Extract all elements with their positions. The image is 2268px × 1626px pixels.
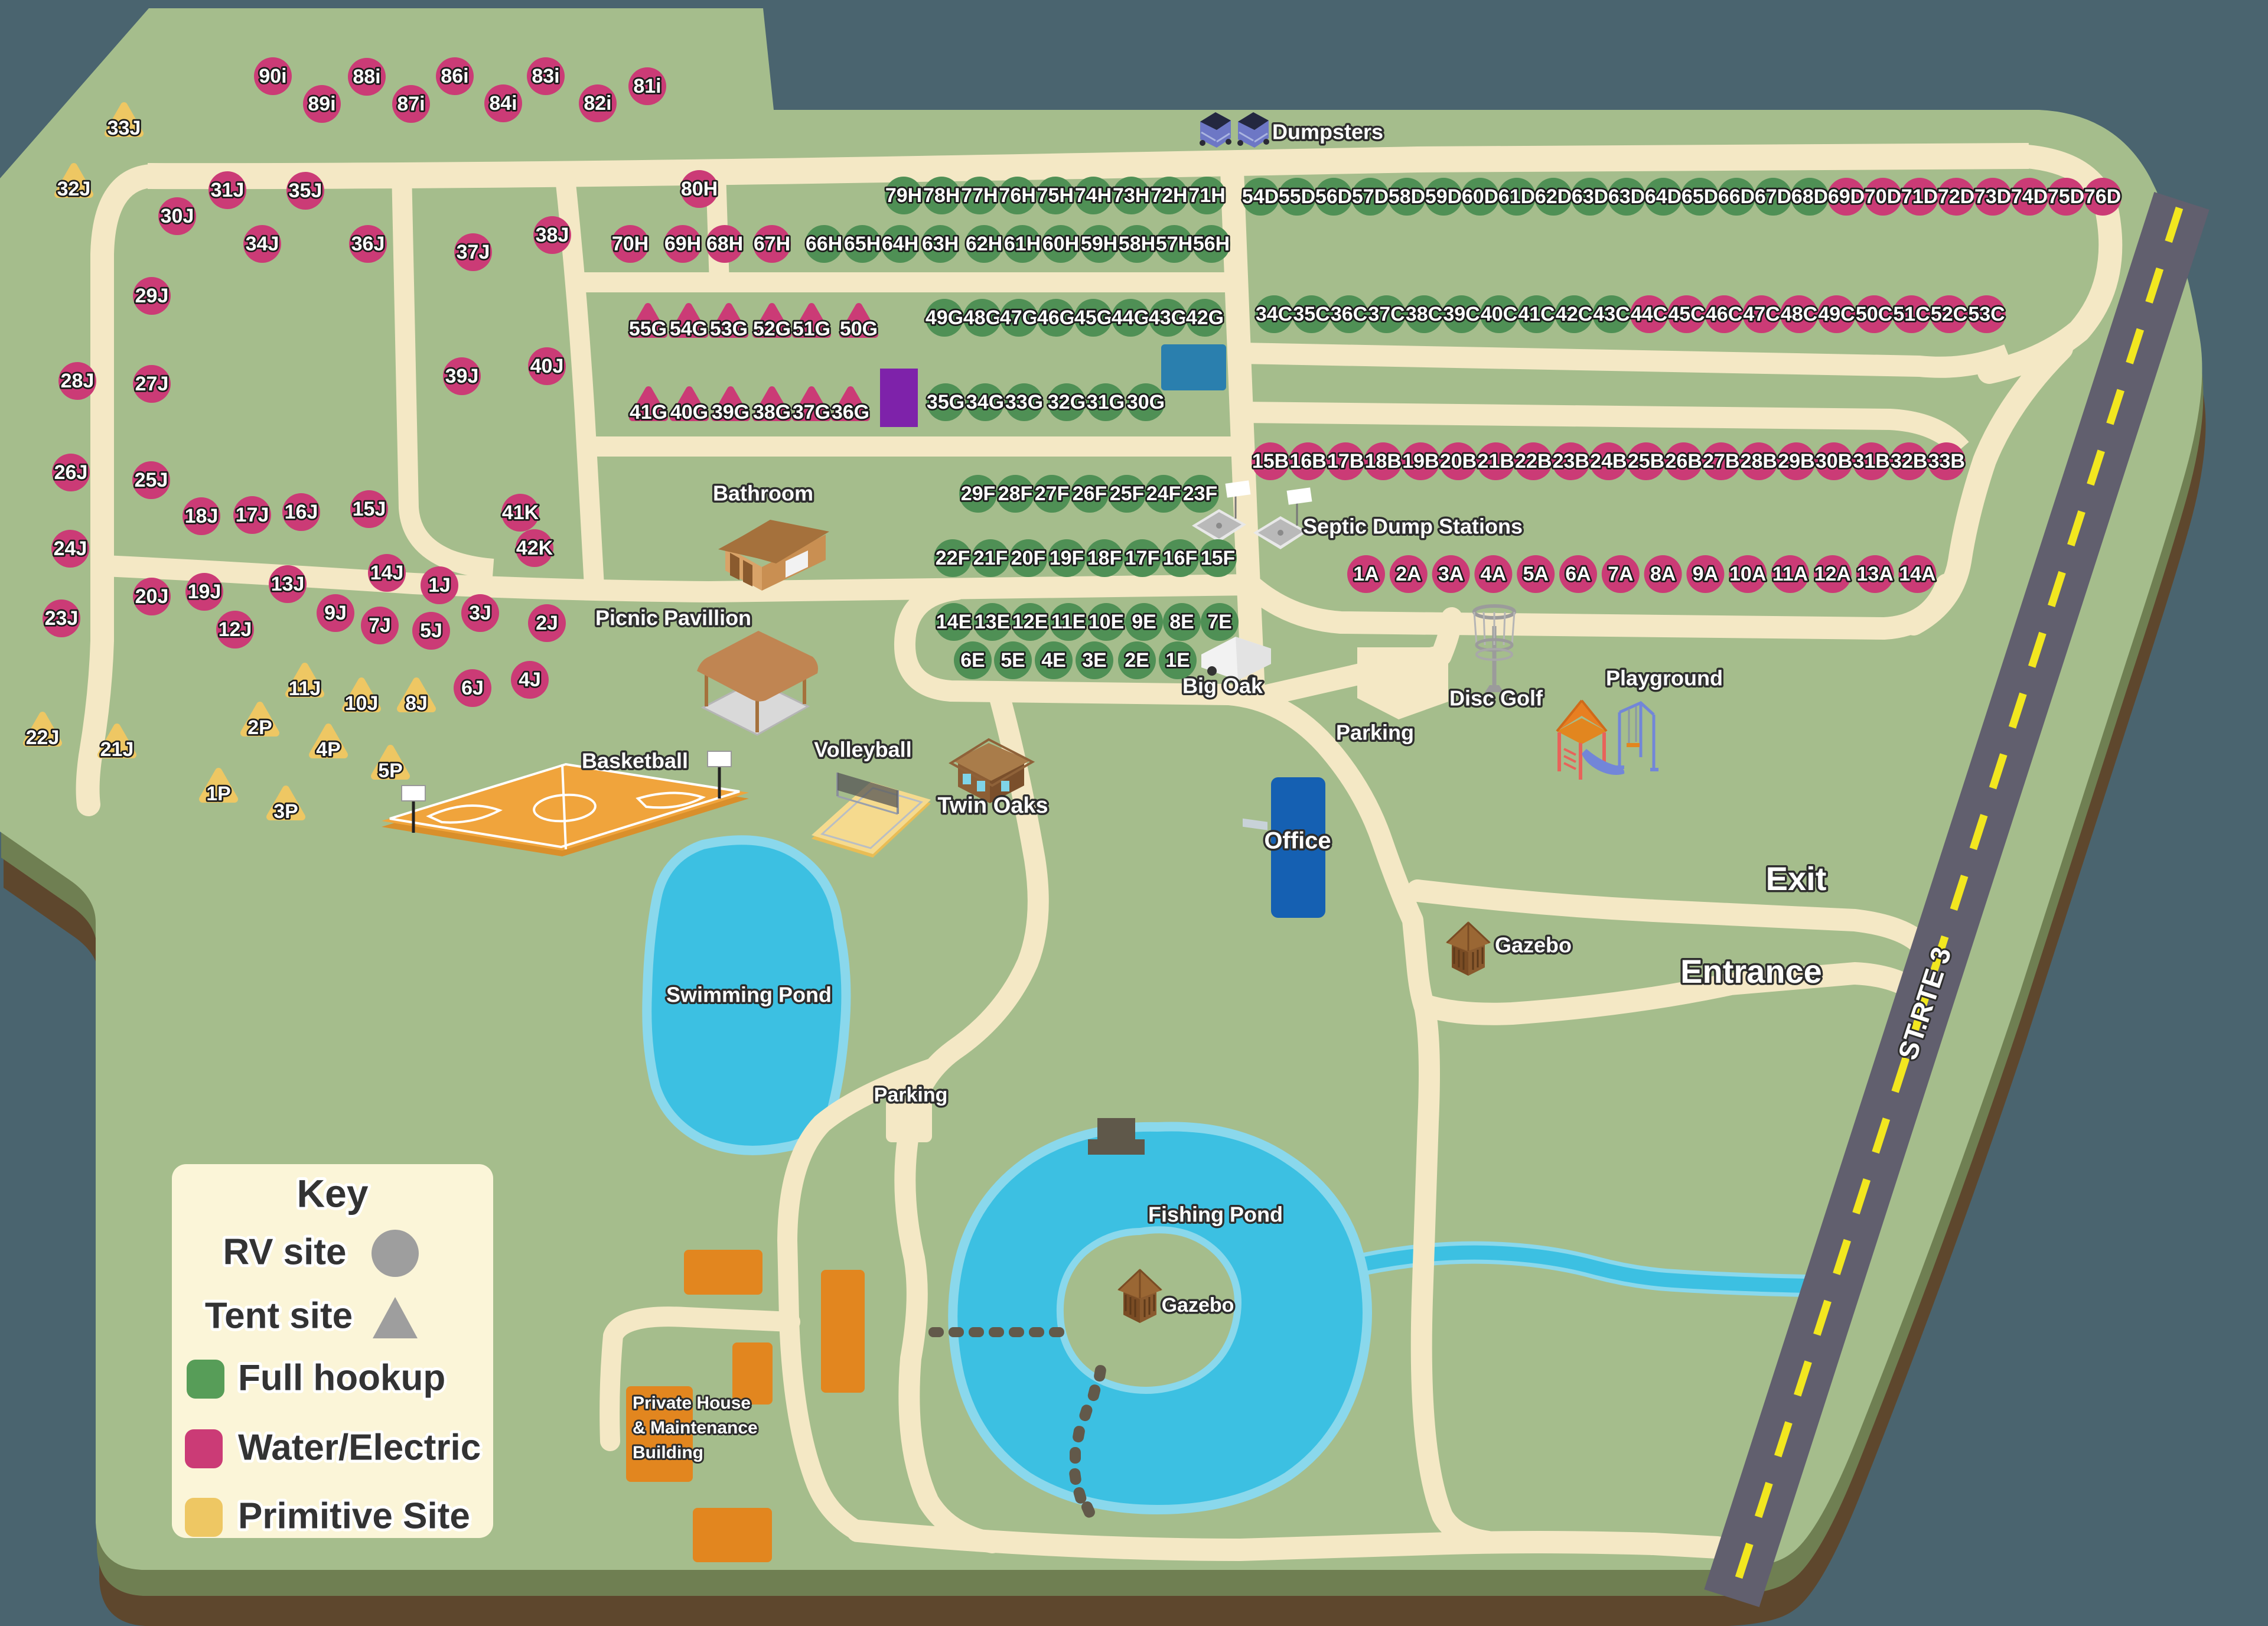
svg-text:21J: 21J [100,738,134,761]
svg-text:49C: 49C [1818,303,1855,325]
svg-text:51C: 51C [1893,303,1930,325]
svg-text:29F: 29F [961,483,996,505]
svg-text:46G: 46G [1037,307,1075,329]
svg-text:10A: 10A [1729,563,1766,585]
svg-text:18B: 18B [1365,450,1402,473]
svg-text:67D: 67D [1755,185,1791,208]
svg-text:78H: 78H [923,184,960,207]
svg-text:53C: 53C [1968,303,2005,325]
svg-text:1A: 1A [1353,563,1379,585]
svg-text:20J: 20J [135,585,169,608]
svg-text:72D: 72D [1938,185,1974,208]
svg-text:4J: 4J [519,669,541,691]
svg-text:28B: 28B [1741,450,1777,473]
svg-text:35G: 35G [927,391,964,413]
svg-text:72H: 72H [1151,184,1187,207]
svg-text:45C: 45C [1668,303,1705,325]
svg-text:Full hookup: Full hookup [238,1357,445,1398]
svg-text:89i: 89i [308,93,335,115]
svg-text:14E: 14E [936,611,972,633]
svg-text:43C: 43C [1593,303,1630,325]
svg-text:3A: 3A [1438,563,1464,585]
svg-text:Fishing Pond: Fishing Pond [1148,1203,1283,1227]
svg-text:22J: 22J [26,726,60,749]
svg-text:83i: 83i [532,65,559,87]
svg-text:61D: 61D [1498,185,1535,208]
svg-text:25B: 25B [1628,450,1664,473]
svg-text:23B: 23B [1553,450,1589,473]
svg-text:10E: 10E [1089,611,1125,633]
svg-text:9E: 9E [1132,611,1156,633]
svg-text:69D: 69D [1828,185,1865,208]
svg-text:62D: 62D [1535,185,1572,208]
svg-text:22F: 22F [936,547,970,569]
svg-text:65H: 65H [844,233,881,255]
svg-text:3P: 3P [273,800,298,823]
svg-text:Picnic Pavillion: Picnic Pavillion [595,606,751,630]
svg-text:Key: Key [296,1171,368,1215]
svg-text:56D: 56D [1315,185,1352,208]
svg-text:35J: 35J [289,180,322,202]
svg-text:40C: 40C [1481,303,1517,325]
svg-text:38G: 38G [753,401,791,423]
svg-text:16F: 16F [1163,547,1198,569]
svg-text:80H: 80H [681,178,718,200]
svg-text:19B: 19B [1402,450,1439,473]
svg-text:Primitive Site: Primitive Site [238,1495,470,1536]
svg-text:66D: 66D [1718,185,1755,208]
svg-text:73D: 73D [1974,185,2011,208]
svg-text:76D: 76D [2084,185,2121,208]
svg-text:41C: 41C [1518,303,1555,325]
svg-text:14A: 14A [1899,563,1935,585]
svg-text:11E: 11E [1051,611,1086,633]
svg-text:Tent site: Tent site [205,1295,353,1336]
svg-text:58D: 58D [1389,185,1425,208]
svg-text:3E: 3E [1082,649,1107,672]
svg-text:Parking: Parking [874,1084,948,1106]
svg-text:27F: 27F [1035,483,1070,505]
svg-text:68H: 68H [706,233,743,255]
svg-text:56H: 56H [1193,233,1230,255]
svg-text:Parking: Parking [1336,721,1414,745]
svg-text:24F: 24F [1146,483,1181,505]
svg-text:9J: 9J [324,602,347,624]
svg-text:88i: 88i [353,66,380,88]
svg-text:12J: 12J [219,618,252,641]
svg-text:42G: 42G [1186,307,1224,329]
svg-text:21F: 21F [973,547,1008,569]
svg-text:4E: 4E [1041,649,1066,672]
svg-text:90i: 90i [259,65,286,87]
svg-text:44C: 44C [1631,303,1667,325]
svg-text:Exit: Exit [1766,860,1827,897]
svg-text:Twin Oaks: Twin Oaks [937,793,1048,818]
svg-text:33B: 33B [1928,450,1965,473]
svg-text:37G: 37G [793,401,830,423]
svg-text:Building: Building [633,1443,703,1462]
svg-text:46C: 46C [1706,303,1742,325]
svg-text:37C: 37C [1368,303,1405,325]
svg-text:19J: 19J [188,581,221,603]
svg-text:28F: 28F [998,483,1033,505]
svg-text:17F: 17F [1125,547,1160,569]
svg-text:18F: 18F [1087,547,1122,569]
svg-text:67H: 67H [754,233,790,255]
svg-text:34J: 34J [246,233,279,255]
svg-text:81i: 81i [633,75,661,97]
svg-text:2A: 2A [1396,563,1421,585]
svg-text:63D: 63D [1572,185,1608,208]
svg-text:1E: 1E [1165,649,1190,672]
svg-text:11A: 11A [1772,563,1808,585]
svg-text:79H: 79H [885,184,922,207]
svg-text:4P: 4P [316,738,341,761]
svg-text:57D: 57D [1352,185,1389,208]
svg-text:48G: 48G [963,307,1001,329]
svg-text:41K: 41K [502,501,539,524]
svg-text:59D: 59D [1425,185,1462,208]
svg-text:58H: 58H [1119,233,1155,255]
svg-text:8E: 8E [1169,611,1194,633]
svg-text:20F: 20F [1011,547,1046,569]
svg-text:47C: 47C [1743,303,1780,325]
svg-text:48C: 48C [1781,303,1817,325]
svg-text:8J: 8J [405,692,428,715]
svg-text:Swimming Pond: Swimming Pond [666,983,832,1007]
svg-text:6E: 6E [960,649,985,672]
svg-text:12E: 12E [1012,611,1048,633]
svg-text:45G: 45G [1074,307,1112,329]
svg-text:17J: 17J [236,504,269,526]
svg-text:82i: 82i [584,92,611,115]
svg-text:6J: 6J [461,677,484,699]
svg-text:66H: 66H [806,233,842,255]
svg-text:33G: 33G [1005,391,1043,413]
svg-text:16J: 16J [285,501,318,523]
svg-text:62H: 62H [966,233,1002,255]
svg-text:3J: 3J [469,602,491,624]
svg-text:40G: 40G [670,401,708,423]
svg-text:59H: 59H [1081,233,1117,255]
svg-text:5A: 5A [1523,563,1548,585]
svg-text:4A: 4A [1481,563,1506,585]
svg-text:27B: 27B [1703,450,1739,473]
svg-text:Basketball: Basketball [582,749,688,773]
svg-text:63D: 63D [1608,185,1645,208]
svg-text:40J: 40J [530,355,564,377]
svg-text:52G: 52G [753,318,791,340]
svg-text:55D: 55D [1279,185,1315,208]
svg-text:74D: 74D [2011,185,2048,208]
svg-text:36G: 36G [832,401,869,423]
svg-text:74H: 74H [1075,184,1112,207]
svg-text:15J: 15J [353,498,386,520]
svg-text:42C: 42C [1556,303,1592,325]
svg-text:2E: 2E [1125,649,1149,672]
svg-text:32J: 32J [57,178,91,200]
svg-text:31G: 31G [1087,391,1125,413]
svg-text:Volleyball: Volleyball [814,738,911,762]
svg-text:75D: 75D [2048,185,2084,208]
svg-text:64D: 64D [1645,185,1682,208]
svg-text:54G: 54G [670,318,708,340]
svg-text:49G: 49G [926,307,963,329]
svg-text:37J: 37J [457,241,490,263]
svg-text:10J: 10J [345,692,379,715]
svg-text:30J: 30J [161,205,194,227]
svg-text:6A: 6A [1565,563,1591,585]
svg-text:53G: 53G [710,318,748,340]
svg-text:29J: 29J [135,285,169,307]
svg-text:69H: 69H [664,233,701,255]
svg-text:38J: 38J [536,224,569,246]
svg-text:68D: 68D [1791,185,1828,208]
svg-text:39C: 39C [1443,303,1480,325]
svg-text:41G: 41G [630,401,667,423]
svg-text:Dumpsters: Dumpsters [1272,120,1383,144]
svg-text:11J: 11J [289,677,321,700]
svg-text:15F: 15F [1201,547,1236,569]
svg-text:20B: 20B [1440,450,1477,473]
svg-text:Septic Dump Stations: Septic Dump Stations [1303,514,1523,539]
svg-text:RV site: RV site [223,1231,346,1272]
svg-text:51G: 51G [793,318,830,340]
svg-text:70D: 70D [1865,185,1901,208]
svg-text:77H: 77H [961,184,998,207]
svg-text:25J: 25J [135,469,168,491]
svg-text:31J: 31J [211,179,245,201]
svg-text:42K: 42K [516,537,553,559]
svg-text:21B: 21B [1477,450,1514,473]
svg-text:47G: 47G [1000,307,1038,329]
svg-text:34G: 34G [966,391,1004,413]
svg-text:19F: 19F [1050,547,1084,569]
svg-text:86i: 86i [441,65,468,87]
svg-text:31B: 31B [1853,450,1889,473]
svg-text:8A: 8A [1650,563,1676,585]
svg-text:60H: 60H [1042,233,1079,255]
svg-text:Gazebo: Gazebo [1162,1294,1234,1317]
svg-text:2P: 2P [247,716,272,739]
svg-text:32B: 32B [1891,450,1927,473]
svg-text:7J: 7J [369,614,391,637]
svg-text:38C: 38C [1406,303,1442,325]
svg-text:7A: 7A [1608,563,1633,585]
svg-text:Private House: Private House [633,1393,751,1413]
svg-text:87i: 87i [397,93,425,115]
svg-text:30G: 30G [1127,391,1165,413]
svg-text:22B: 22B [1515,450,1552,473]
svg-text:57H: 57H [1156,233,1192,255]
svg-text:13E: 13E [975,611,1011,633]
svg-text:5J: 5J [420,620,442,642]
svg-text:Big Oak: Big Oak [1182,674,1263,698]
svg-text:Entrance: Entrance [1680,953,1822,990]
svg-text:39G: 39G [712,401,750,423]
svg-text:27J: 27J [135,373,169,395]
svg-text:26J: 26J [54,461,88,484]
svg-text:32G: 32G [1048,391,1086,413]
svg-text:43G: 43G [1149,307,1187,329]
svg-text:13A: 13A [1856,563,1893,585]
svg-text:2J: 2J [536,612,558,634]
svg-text:5E: 5E [1001,649,1025,672]
svg-text:61H: 61H [1004,233,1041,255]
svg-text:Playground: Playground [1606,666,1723,690]
svg-text:Water/Electric: Water/Electric [238,1427,481,1468]
svg-text:13J: 13J [271,573,305,595]
svg-text:54D: 54D [1242,185,1279,208]
svg-text:5P: 5P [378,760,403,782]
svg-text:36J: 36J [351,233,385,255]
svg-text:70H: 70H [612,233,649,255]
svg-text:28J: 28J [61,370,94,392]
svg-text:23J: 23J [45,607,79,630]
svg-text:15B: 15B [1252,450,1289,473]
svg-text:26F: 26F [1073,483,1107,505]
svg-text:Disc Golf: Disc Golf [1449,686,1543,711]
svg-text:16B: 16B [1289,450,1326,473]
svg-text:33J: 33J [107,117,141,139]
svg-text:Gazebo: Gazebo [1495,933,1572,957]
svg-text:71D: 71D [1901,185,1938,208]
svg-text:55G: 55G [629,318,667,340]
svg-text:23F: 23F [1183,483,1218,505]
svg-text:64H: 64H [882,233,918,255]
svg-text:26B: 26B [1665,450,1702,473]
svg-text:65D: 65D [1682,185,1718,208]
svg-text:Office: Office [1264,828,1331,854]
svg-text:24B: 24B [1590,450,1627,473]
svg-text:50C: 50C [1856,303,1892,325]
svg-text:14J: 14J [370,562,404,584]
svg-text:76H: 76H [999,184,1035,207]
svg-text:25F: 25F [1110,483,1145,505]
svg-text:39J: 39J [445,365,479,387]
svg-text:36C: 36C [1331,303,1367,325]
svg-text:60D: 60D [1462,185,1498,208]
svg-text:Bathroom: Bathroom [713,481,813,506]
svg-text:29B: 29B [1778,450,1814,473]
svg-text:35C: 35C [1293,303,1329,325]
svg-text:75H: 75H [1037,184,1074,207]
svg-text:& Maintenance: & Maintenance [633,1418,758,1438]
svg-text:71H: 71H [1188,184,1225,207]
svg-text:44G: 44G [1112,307,1149,329]
svg-text:1P: 1P [206,783,231,805]
svg-text:24J: 24J [54,537,87,560]
svg-text:18J: 18J [185,505,219,527]
svg-text:50G: 50G [840,318,878,340]
svg-text:30B: 30B [1816,450,1852,473]
svg-text:9A: 9A [1693,563,1718,585]
svg-text:7E: 7E [1207,611,1232,633]
svg-text:84i: 84i [489,92,517,115]
svg-text:17B: 17B [1327,450,1364,473]
svg-text:63H: 63H [922,233,959,255]
svg-text:12A: 12A [1814,563,1851,585]
svg-text:1J: 1J [428,574,451,597]
svg-text:52C: 52C [1931,303,1967,325]
svg-text:73H: 73H [1113,184,1149,207]
svg-text:34C: 34C [1256,303,1292,325]
